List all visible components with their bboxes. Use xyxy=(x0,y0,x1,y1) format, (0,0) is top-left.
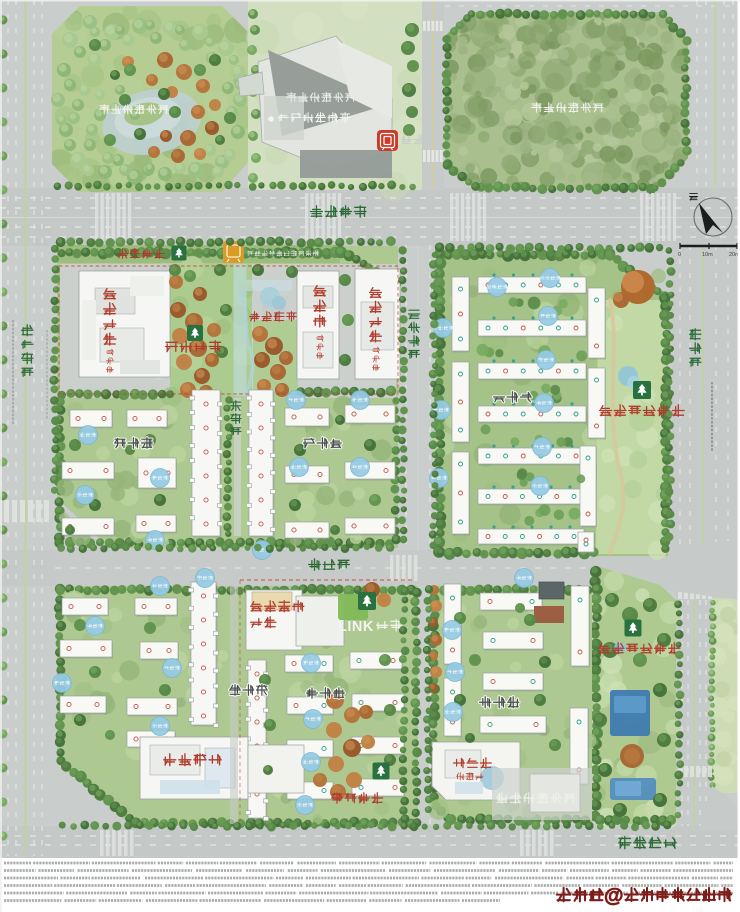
svg-text:LINK: LINK xyxy=(338,619,374,635)
svg-text:0: 0 xyxy=(678,252,681,258)
svg-text:@: @ xyxy=(604,885,624,907)
svg-text:10m: 10m xyxy=(702,252,713,258)
